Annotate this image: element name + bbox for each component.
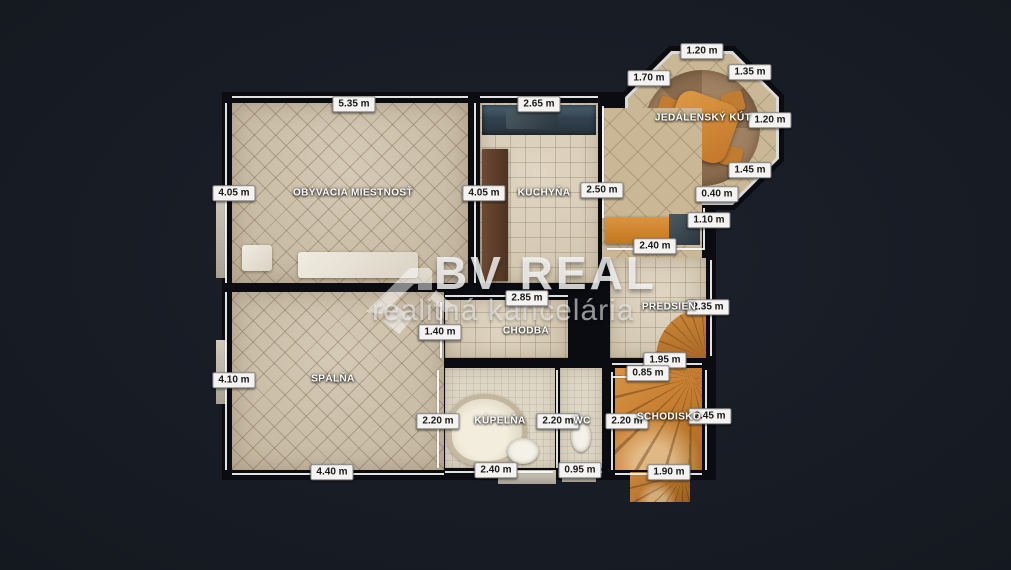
dimension-label: 1.40 m <box>418 324 461 340</box>
room-label-hallway: PREDSIEŇ <box>642 302 696 313</box>
dimension-label: 1.10 m <box>687 212 730 228</box>
dimension-label: 0.85 m <box>626 365 669 381</box>
dimension-label: 0.40 m <box>695 186 738 202</box>
dimension-label: 2.65 m <box>517 96 560 112</box>
dimension-label: 2.20 m <box>416 413 459 429</box>
dimension-label: 5.35 m <box>332 96 375 112</box>
dimension-label: 1.20 m <box>680 43 723 59</box>
dimension-label: 2.50 m <box>580 182 623 198</box>
room-label-bedroom: SPÁLŇA <box>311 374 355 385</box>
room-label-bathroom: KÚPEĽŇA <box>474 416 525 427</box>
dimension-label: 2.40 m <box>633 238 676 254</box>
room-label-stairs: SCHODISKO <box>637 412 701 423</box>
dimension-label: 4.05 m <box>212 185 255 201</box>
dimension-label: 1.45 m <box>728 162 771 178</box>
floorplan-viewer: BV REAL realitná kancelária 5.35 m2.65 m… <box>0 0 1011 570</box>
dimension-label: 0.95 m <box>558 462 601 478</box>
annotations-layer: 5.35 m2.65 m4.05 m4.05 m2.50 m1.20 m1.70… <box>0 0 1011 570</box>
room-label-living: OBÝVACIA MIESTNOSŤ <box>293 188 413 199</box>
room-label-dining: JEDÁLENSKÝ KÚT <box>655 113 751 124</box>
dimension-label: 4.10 m <box>212 372 255 388</box>
room-label-kitchen: KUCHYŇA <box>518 188 571 199</box>
dimension-label: 2.40 m <box>474 462 517 478</box>
dimension-label: 1.20 m <box>748 112 791 128</box>
dimension-label: 1.35 m <box>728 64 771 80</box>
dimension-label: 2.85 m <box>505 290 548 306</box>
dimension-label: 1.90 m <box>647 464 690 480</box>
dimension-label: 1.70 m <box>627 70 670 86</box>
dimension-label: 4.40 m <box>310 464 353 480</box>
dimension-label: 4.05 m <box>462 185 505 201</box>
room-label-corridor: CHODBA <box>503 326 549 337</box>
room-label-wc: WC <box>573 416 590 427</box>
